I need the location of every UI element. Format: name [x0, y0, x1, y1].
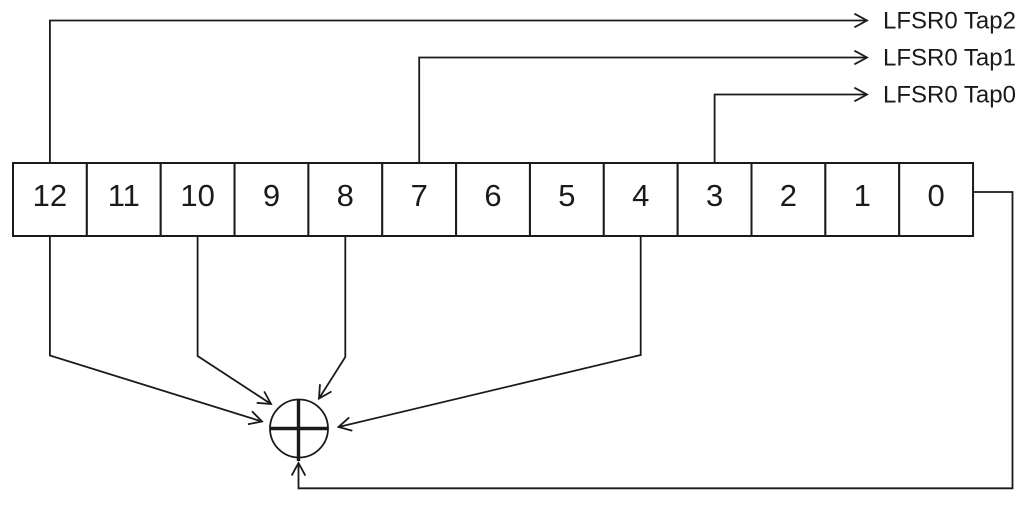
- lfsr-diagram-canvas: 12 11 10 9 8 7: [0, 0, 1024, 505]
- xor-gate-icon: [270, 399, 328, 461]
- register-cell-value: 10: [180, 178, 214, 213]
- xor-input-wire-cell10: [198, 236, 271, 404]
- tap1-wire: [419, 58, 867, 164]
- tap2-wire: [50, 21, 867, 164]
- register-cell-5: 5: [530, 163, 604, 236]
- register-cell-value: 7: [411, 178, 428, 213]
- register-cell-value: 5: [558, 178, 575, 213]
- tap1-label: LFSR0 Tap1: [883, 45, 1016, 72]
- tap-wires: [50, 21, 867, 164]
- register-cell-12: 12: [13, 163, 87, 236]
- tap-labels: LFSR0 Tap2 LFSR0 Tap1 LFSR0 Tap0: [883, 8, 1016, 109]
- register-cell-value: 11: [108, 178, 140, 213]
- lfsr-diagram-page: 12 11 10 9 8 7: [0, 0, 1024, 505]
- register-cell-value: 12: [33, 178, 67, 213]
- register-cell-value: 8: [337, 178, 354, 213]
- tap0-wire: [715, 95, 867, 164]
- register-cell-value: 1: [854, 178, 871, 213]
- register-cell-10: 10: [161, 163, 235, 236]
- tap0-label: LFSR0 Tap0: [883, 82, 1016, 109]
- register-cell-9: 9: [235, 163, 309, 236]
- register-cell-11: 11: [87, 163, 161, 236]
- xor-input-wire-cell12: [50, 236, 262, 422]
- tap2-label: LFSR0 Tap2: [883, 8, 1016, 35]
- xor-input-wires: [50, 236, 641, 427]
- register-cell-value: 4: [632, 178, 649, 213]
- xor-input-wire-cell4: [339, 236, 641, 427]
- register-cell-value: 2: [780, 178, 797, 213]
- register-cell-0: 0: [899, 163, 973, 236]
- register-cell-value: 9: [263, 178, 280, 213]
- register-cell-1: 1: [825, 163, 899, 236]
- register-cell-6: 6: [456, 163, 530, 236]
- register-cell-value: 3: [706, 178, 723, 213]
- register-cell-8: 8: [308, 163, 382, 236]
- register-cell-value: 6: [484, 178, 501, 213]
- register-cell-7: 7: [382, 163, 456, 236]
- register-cell-4: 4: [604, 163, 678, 236]
- register-cell-2: 2: [752, 163, 826, 236]
- lfsr-register: 12 11 10 9 8 7: [13, 163, 973, 236]
- register-cell-value: 0: [927, 178, 944, 213]
- register-cell-3: 3: [678, 163, 752, 236]
- xor-input-wire-cell8: [319, 236, 345, 399]
